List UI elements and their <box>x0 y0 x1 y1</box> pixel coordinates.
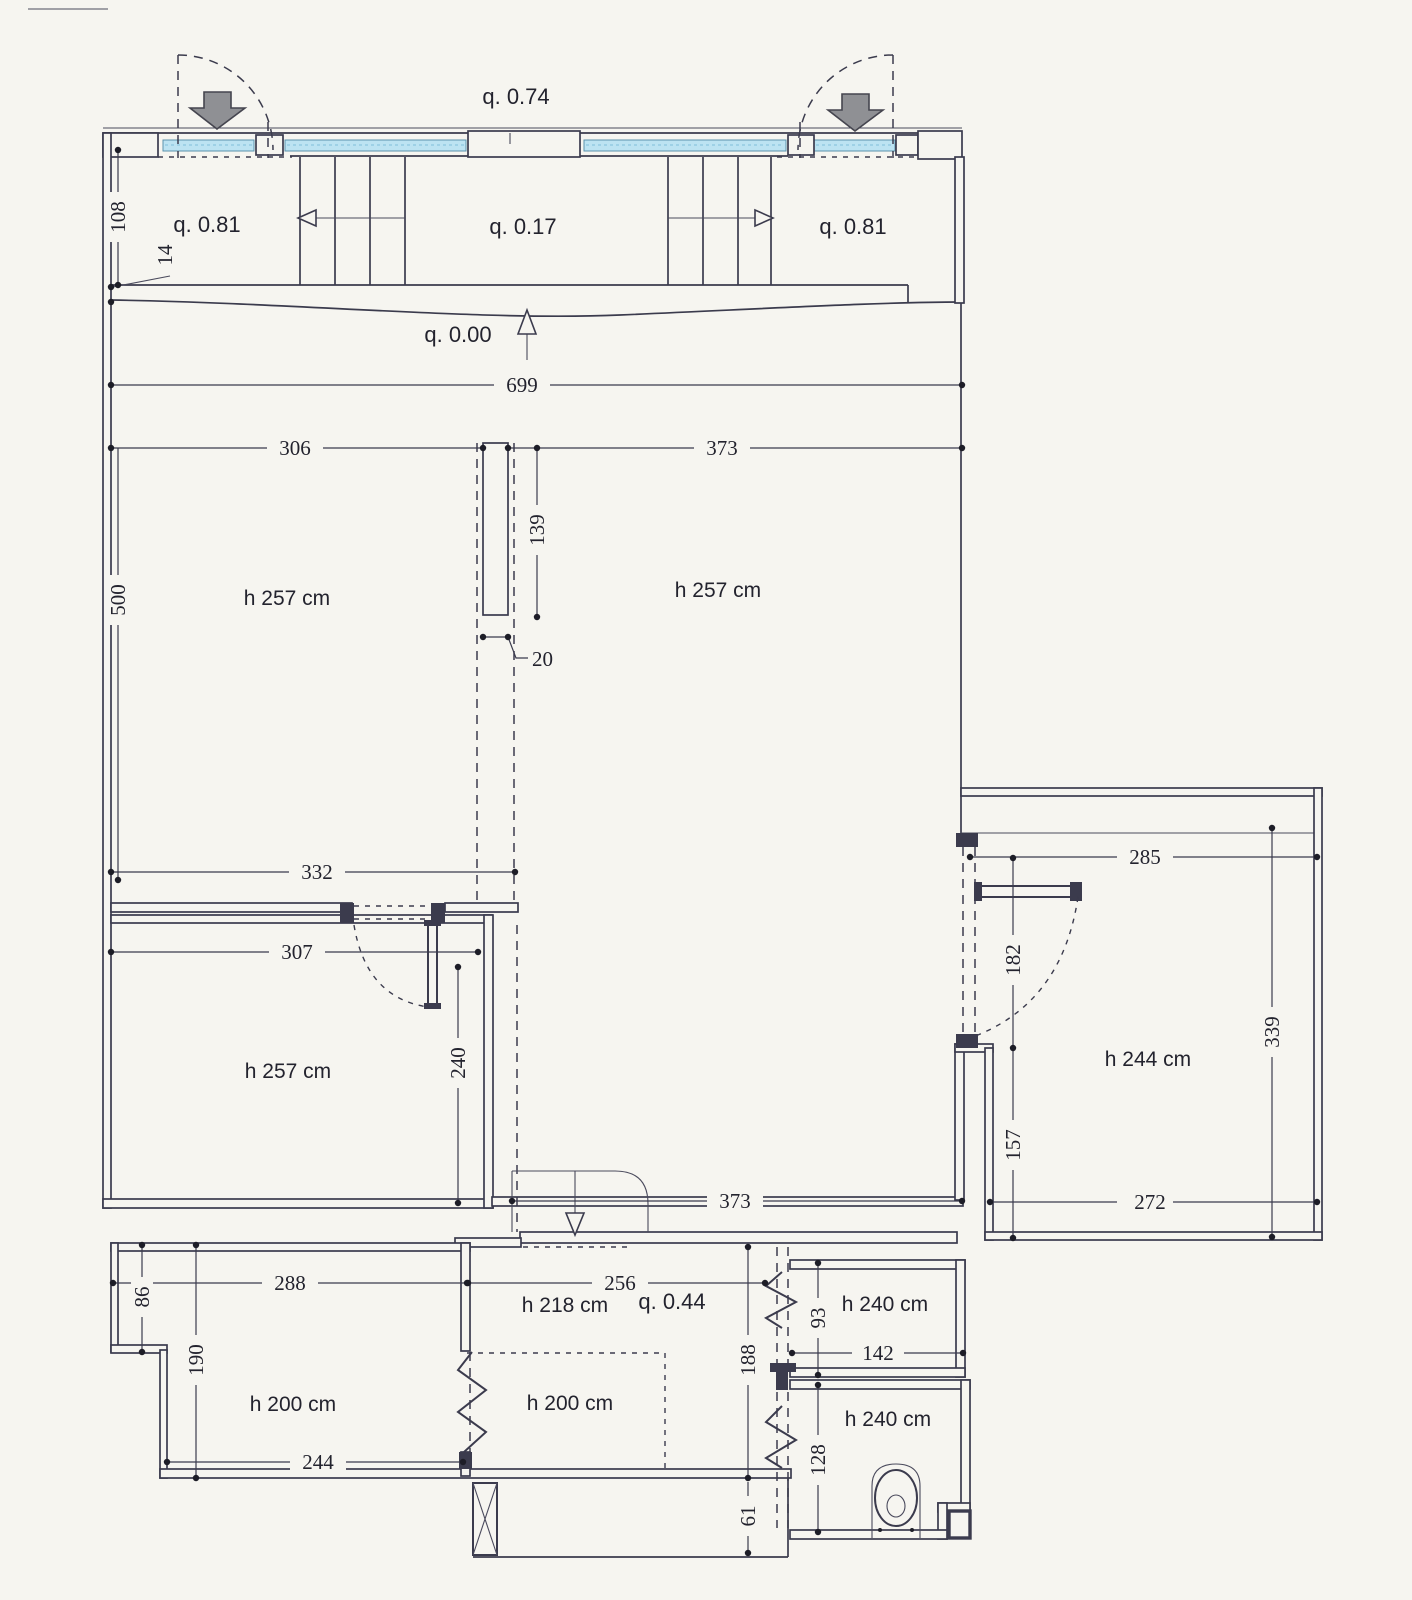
zigzag-icon <box>458 1352 486 1452</box>
room-lowerleft-height: h 257 cm <box>245 1060 331 1083</box>
dim-307: 307 <box>281 940 313 964</box>
door-jamb <box>956 833 978 847</box>
wall-bottom-band <box>160 1469 791 1478</box>
level-entry: q. 0.74 <box>482 84 549 109</box>
dim-288: 288 <box>274 1271 306 1295</box>
toilet-bowl <box>875 1470 917 1526</box>
dim-256: 256 <box>604 1271 636 1295</box>
dim-128: 128 <box>806 1444 830 1476</box>
dashed-partitions <box>354 443 975 1528</box>
dim-339: 339 <box>1260 1016 1284 1048</box>
door-jamb <box>770 1363 796 1372</box>
window-mullion-right <box>788 135 814 155</box>
wall-bottomstrip-top <box>520 1232 957 1243</box>
level-ground: q. 0.00 <box>424 322 491 347</box>
door-leaf <box>428 925 437 1005</box>
dim-244: 244 <box>302 1450 334 1474</box>
wall-stub <box>483 443 508 615</box>
wall-stairs-right <box>955 157 964 303</box>
dim-240: 240 <box>446 1047 470 1079</box>
dimension-texts: 108 14 699 306 373 139 20 500 332 307 24… <box>106 192 1284 1536</box>
dim-182: 182 <box>1001 944 1025 976</box>
dim-157: 157 <box>1001 1129 1025 1161</box>
window-band <box>103 128 962 159</box>
room-bottommid-height: h 218 cm <box>522 1294 608 1317</box>
wall-store-right <box>956 1260 965 1377</box>
room-right-height: h 244 cm <box>1105 1048 1191 1071</box>
dim-285: 285 <box>1129 845 1161 869</box>
room-store-height: h 240 cm <box>842 1293 928 1316</box>
entry-arrow-right-icon <box>828 94 883 131</box>
pillar <box>949 1511 970 1538</box>
level-mid-landing: q. 0.17 <box>489 214 556 239</box>
dim-14: 14 <box>153 244 177 266</box>
dim-86: 86 <box>130 1287 154 1308</box>
wall-wc-right <box>961 1380 970 1511</box>
dim-20: 20 <box>532 647 553 671</box>
wall-rightroom-top <box>961 788 1322 796</box>
dim-142: 142 <box>862 1341 894 1365</box>
level-right-landing: q. 0.81 <box>819 214 886 239</box>
dim-332: 332 <box>301 860 333 884</box>
wall-bottomleft-top <box>111 1243 470 1251</box>
stairs-right-direction-arrow <box>668 210 773 226</box>
wall-corner-right <box>918 131 962 159</box>
dim-108: 108 <box>106 201 130 233</box>
dim-373-bottom: 373 <box>719 1189 751 1213</box>
entrance-up-arrow <box>518 310 536 360</box>
room-labels: h 257 cm h 257 cm h 257 cm h 244 cm h 20… <box>244 579 1191 1431</box>
window-mullion-left <box>256 135 283 155</box>
wall-rightroom-inner-left <box>985 1048 993 1240</box>
dim-272: 272 <box>1134 1190 1166 1214</box>
room-bottomleft-height: h 200 cm <box>250 1393 336 1416</box>
wall-left-outer <box>103 133 111 1208</box>
floor-plan-page: 108 14 699 306 373 139 20 500 332 307 24… <box>0 0 1412 1600</box>
zigzag-icon <box>766 1272 796 1328</box>
wall-wc-bottom <box>790 1530 947 1539</box>
entry-landing-gap <box>468 131 580 157</box>
wall-pier-right <box>896 135 918 155</box>
dim-139: 139 <box>525 514 549 546</box>
door-jamb <box>776 1371 788 1390</box>
door-leaf <box>978 886 1078 897</box>
wall-lowerleft-bottom <box>103 1199 493 1208</box>
dim-93: 93 <box>806 1308 830 1329</box>
staircase <box>103 157 961 360</box>
door-swing-arc <box>354 925 428 1007</box>
room-wc-height: h 240 cm <box>845 1408 931 1431</box>
room-left-height: h 257 cm <box>244 587 330 610</box>
dim-188: 188 <box>736 1344 760 1376</box>
door-jamb <box>956 1034 978 1048</box>
level-lower: q. 0.44 <box>638 1289 705 1314</box>
dim-373-top: 373 <box>706 436 738 460</box>
dim-306: 306 <box>279 436 311 460</box>
level-labels: q. 0.74 q. 0.81 q. 0.17 q. 0.81 q. 0.00 … <box>173 84 886 1314</box>
dim-699: 699 <box>506 373 538 397</box>
floor-plan-drawing: 108 14 699 306 373 139 20 500 332 307 24… <box>0 0 1412 1600</box>
dim-500: 500 <box>106 584 130 616</box>
entry-arrow-left-icon <box>190 92 245 129</box>
room-main-height: h 257 cm <box>675 579 761 602</box>
level-left-landing: q. 0.81 <box>173 212 240 237</box>
dim-190: 190 <box>184 1344 208 1376</box>
stairs-left-direction-arrow <box>298 210 405 226</box>
wall-lowerleft-right <box>484 915 493 1208</box>
door-jamb <box>340 903 354 923</box>
entrance-step-edge <box>111 300 961 316</box>
walls <box>103 133 1322 1539</box>
toilet <box>872 1464 920 1538</box>
room-bottommid-inner-height: h 200 cm <box>527 1392 613 1415</box>
dim-61: 61 <box>736 1506 760 1527</box>
zigzag-icon <box>766 1406 796 1468</box>
